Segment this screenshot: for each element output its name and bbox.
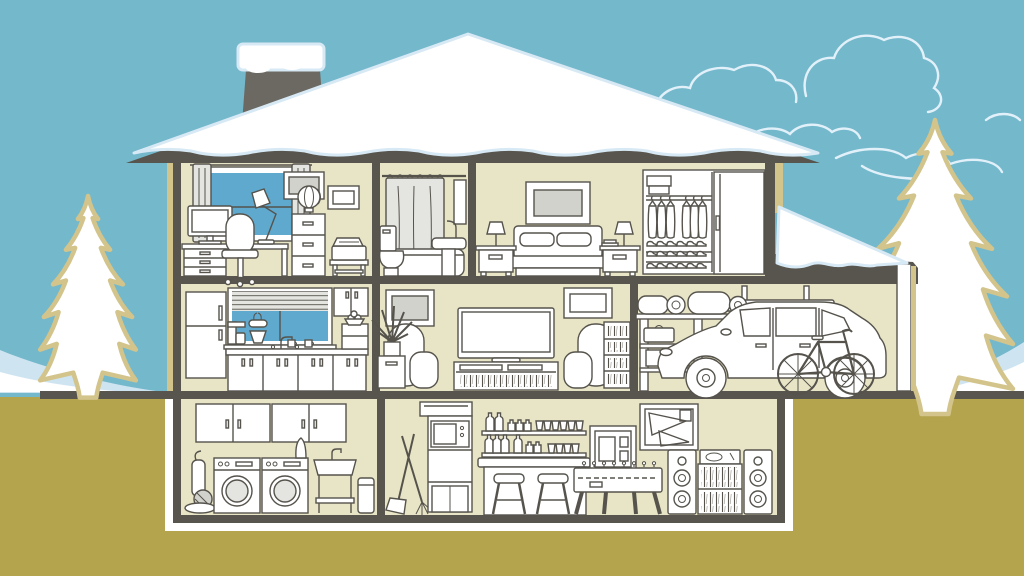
washer xyxy=(214,458,260,513)
basement-partition-wall xyxy=(377,399,385,515)
bed xyxy=(511,226,605,276)
car-window xyxy=(740,308,770,336)
vinyl-records xyxy=(701,492,739,512)
car-window xyxy=(776,308,816,336)
vinyl-records xyxy=(701,467,739,487)
bedroom-wall-art xyxy=(526,182,590,224)
ground-line xyxy=(40,391,1024,399)
coffee-maker xyxy=(228,322,245,344)
upper-right-siding xyxy=(775,160,783,213)
wall-office-bathroom xyxy=(372,160,380,276)
base-cabinets xyxy=(228,355,366,391)
pennant-frame xyxy=(640,404,698,450)
door-handle xyxy=(716,216,720,230)
speaker-right xyxy=(744,450,772,514)
duffel-bag xyxy=(688,292,730,314)
kitchen-counter xyxy=(226,349,368,391)
winter-house-illustration xyxy=(0,0,1024,576)
side-mirror xyxy=(721,329,731,335)
garage-right-siding xyxy=(911,266,916,391)
refrigerator xyxy=(186,292,226,378)
left-wall-siding xyxy=(167,160,173,391)
basement-right-wall xyxy=(777,399,785,515)
duffel-bag xyxy=(638,296,668,314)
file-cabinet xyxy=(292,214,325,276)
headlight xyxy=(660,349,672,356)
sleeping-roll xyxy=(667,296,685,314)
record-shelf xyxy=(698,450,742,514)
sliding-door xyxy=(714,172,764,274)
bathroom-wall-cabinet xyxy=(454,180,466,224)
garage-right-wall xyxy=(897,264,911,391)
storage-box xyxy=(649,186,669,194)
left-wall xyxy=(173,160,181,391)
basement-floor xyxy=(173,515,785,523)
speaker-left xyxy=(668,450,696,514)
closet xyxy=(643,170,765,274)
rec-wall-frame xyxy=(420,402,472,416)
score-marker xyxy=(590,482,602,487)
upper-cabinet xyxy=(334,288,368,316)
bike-crank xyxy=(822,368,831,377)
pillow xyxy=(520,233,554,246)
basement-left-wall xyxy=(173,399,181,515)
television xyxy=(458,308,554,362)
plant-stand xyxy=(378,356,405,388)
mattress xyxy=(511,256,605,268)
receiver xyxy=(508,365,542,370)
dvd-shelf xyxy=(460,375,552,387)
storage-box xyxy=(647,176,671,186)
printer-stand xyxy=(330,238,368,276)
trash-can xyxy=(358,478,374,513)
window-blinds xyxy=(232,291,328,311)
scene-canvas xyxy=(0,0,1024,576)
car-wheel-front xyxy=(686,358,726,398)
media-console xyxy=(454,362,558,390)
bed-base xyxy=(516,268,600,276)
dvd-player xyxy=(460,365,502,370)
bookshelf xyxy=(604,322,630,388)
upper-right-wall xyxy=(765,160,775,284)
plant-pot xyxy=(384,342,400,356)
microwave-shelf xyxy=(428,416,472,512)
shadow-box xyxy=(590,426,636,472)
suitcase xyxy=(644,328,674,342)
pillow xyxy=(557,233,591,246)
wall-bathroom-bedroom xyxy=(468,160,476,276)
wall-living-garage xyxy=(630,284,638,391)
bike-seat xyxy=(812,336,823,340)
books xyxy=(604,240,616,243)
printer xyxy=(332,246,366,260)
